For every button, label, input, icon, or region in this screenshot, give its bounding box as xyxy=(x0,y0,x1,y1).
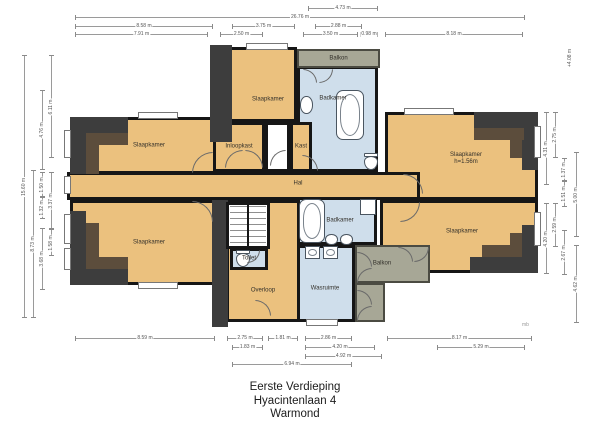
dimension-label: 5.00 m xyxy=(573,186,579,203)
dimension-label: 26.76 m xyxy=(290,14,310,20)
dimension-tick xyxy=(377,6,378,11)
shower-fixture-icon xyxy=(360,199,376,215)
dimension-tick xyxy=(207,32,208,37)
dimension-tick xyxy=(297,336,298,341)
floorplan-canvas: Slaapkamer h=1.56mSlaapkamerSlaapkamerSl… xyxy=(0,0,600,424)
dimension-tick xyxy=(351,336,352,341)
staircase xyxy=(226,202,270,249)
dimension-label: 6.11 m xyxy=(48,98,54,115)
dimension-tick xyxy=(524,15,525,20)
dimension-tick xyxy=(437,345,438,350)
dimension-tick xyxy=(574,245,579,246)
dimension-label: 3.37 m xyxy=(48,192,54,209)
dimension-label: 8.58 m xyxy=(135,23,152,29)
dimension-tick xyxy=(75,32,76,37)
dimension-tick xyxy=(562,181,567,182)
dimension-tick xyxy=(544,273,549,274)
room-label-badkamer-bottom: Badkamer xyxy=(326,218,353,225)
sink-fixture-icon xyxy=(340,234,353,245)
dimension-tick xyxy=(544,203,549,204)
dimension-tick xyxy=(40,169,45,170)
dimension-tick xyxy=(212,24,213,29)
room-label-bedroom-top-left: Slaapkamer xyxy=(133,142,165,149)
dimension-tick xyxy=(553,157,558,158)
dimension-tick xyxy=(75,24,76,29)
room-label-kast: Kast xyxy=(295,144,307,151)
dimension-tick xyxy=(268,336,269,341)
title-address: Hyacintenlaan 4 xyxy=(155,395,435,409)
room-label-overloop: Overloop xyxy=(251,288,275,295)
title-city: Warmond xyxy=(155,408,435,422)
dimension-tick xyxy=(531,336,532,341)
dimension-label: 6.94 m xyxy=(283,361,300,367)
dimension-tick xyxy=(553,246,558,247)
dimension-label: 2.67 m xyxy=(561,244,567,261)
dimension-label: 3.50 m xyxy=(322,31,339,37)
window xyxy=(246,43,288,50)
dimension-label: 2.50 m xyxy=(233,31,250,37)
dimension-label: 4.20 m xyxy=(543,230,549,247)
dimension-tick xyxy=(40,172,45,173)
dimension-tick xyxy=(305,345,306,350)
dimension-tick xyxy=(374,345,375,350)
dimension-tick xyxy=(544,112,549,113)
dimension-label: 15.60 m xyxy=(21,176,27,196)
dimension-tick xyxy=(351,362,352,367)
window xyxy=(534,126,541,158)
roof-slope-zone xyxy=(86,257,128,269)
dimension-tick xyxy=(305,336,306,341)
washer-fixture-icon xyxy=(323,246,338,259)
dimension-tick xyxy=(305,354,306,359)
dimension-tick xyxy=(522,32,523,37)
dimension-tick xyxy=(553,112,558,113)
dimension-label: 2.88 m xyxy=(330,23,347,29)
dimension-label: 2.86 m xyxy=(320,335,337,341)
dimension-tick xyxy=(40,289,45,290)
dimension-label: 4.76 m xyxy=(39,121,45,138)
room-label-badkamer-top: Badkamer xyxy=(319,96,346,103)
dimension-label: 8.18 m xyxy=(445,31,462,37)
room-label-bedroom-bottom-right: Slaapkamer xyxy=(446,229,478,236)
room-label-bedroom-top-right: Slaapkamer h=1.56m xyxy=(450,152,482,166)
window xyxy=(306,319,338,326)
room-label-inloopkast: Inloopkast xyxy=(225,144,252,151)
dimension-tick xyxy=(49,255,54,256)
dimension-tick xyxy=(49,55,54,56)
dimension-tick xyxy=(232,24,233,29)
roof-slope-zone xyxy=(510,128,522,158)
floorplan-page: { "title": { "line1": "Eerste Verdieping… xyxy=(0,0,600,424)
dimension-tick xyxy=(262,32,263,37)
tank-fixture-icon xyxy=(364,153,378,157)
dimension-tick xyxy=(562,230,567,231)
room-label-toilet: Toilet xyxy=(242,256,256,263)
dimension-tick xyxy=(220,32,221,37)
dimension-tick xyxy=(262,336,263,341)
dimension-tick xyxy=(574,152,579,153)
window xyxy=(534,212,541,246)
dimension-tick xyxy=(315,24,316,29)
room-hal xyxy=(67,172,420,200)
window xyxy=(64,130,71,158)
dimension-tick xyxy=(357,32,358,37)
dimension-tick xyxy=(524,345,525,350)
dimension-label: 3.68 m xyxy=(39,250,45,267)
roof-slope-zone xyxy=(70,117,128,133)
title-block: Eerste Verdieping Hyacintenlaan 4 Warmon… xyxy=(155,381,435,422)
dimension-label: 8.59 m xyxy=(136,335,153,341)
dimension-tick xyxy=(562,206,567,207)
dimension-tick xyxy=(387,336,388,341)
room-label-wasruimte: Wasruimte xyxy=(311,286,339,293)
dimension-label: 1.58 m xyxy=(48,234,54,251)
room-label-hal: Hal xyxy=(293,181,302,188)
dimension-label: 1.37 m xyxy=(561,161,567,178)
dimension-tick xyxy=(75,336,76,341)
roof-slope-zone xyxy=(210,45,232,142)
washer-drum xyxy=(326,249,335,256)
sink-fixture-icon xyxy=(300,96,313,114)
dimension-tick xyxy=(232,345,233,350)
dimension-tick xyxy=(40,218,45,219)
room-label-balkon-bottom: Balkon xyxy=(373,261,391,268)
dimension-tick xyxy=(49,172,54,173)
tub-fixture-icon xyxy=(299,199,325,243)
dimension-tick xyxy=(308,6,309,11)
room-label-bedroom-bottom-left: Slaapkamer xyxy=(133,239,165,246)
dimension-label: 5.29 m xyxy=(472,344,489,350)
dimension-tick xyxy=(562,274,567,275)
dimension-tick xyxy=(40,197,45,198)
window xyxy=(138,282,178,289)
dimension-tick xyxy=(574,236,579,237)
dimension-tick xyxy=(40,228,45,229)
dimension-label: 1.81 m xyxy=(274,335,291,341)
sink-fixture-icon xyxy=(325,234,338,245)
dimension-label: 3.75 m xyxy=(255,23,272,29)
tub-basin xyxy=(303,203,321,239)
level-marker-label: +4.08 m xyxy=(567,48,573,68)
dimension-tick xyxy=(294,24,295,29)
dimension-tick xyxy=(262,345,263,350)
room-label-balkon-top: Balkon xyxy=(329,55,347,62)
title-floor: Eerste Verdieping xyxy=(155,381,435,395)
dimension-label: 4.92 m xyxy=(335,353,352,359)
dimension-tick xyxy=(544,184,549,185)
dimension-label: 1.83 m xyxy=(239,344,256,350)
washer-fixture-icon xyxy=(305,246,320,259)
dimension-tick xyxy=(49,229,54,230)
dimension-label: 8.73 m xyxy=(30,235,36,252)
dimension-tick xyxy=(214,336,215,341)
dimension-tick xyxy=(574,322,579,323)
dimension-tick xyxy=(22,317,27,318)
dimension-tick xyxy=(49,157,54,158)
dimension-label: 2.59 m xyxy=(552,216,558,233)
roof-slope-zone xyxy=(510,233,522,257)
dimension-tick xyxy=(232,362,233,367)
window xyxy=(64,248,71,270)
dimension-label: 2.75 m xyxy=(236,335,253,341)
dimension-tick xyxy=(31,317,36,318)
window xyxy=(404,108,454,115)
dimension-label: 4.62 m xyxy=(573,275,579,292)
dimension-label: 4.73 m xyxy=(334,5,351,11)
dimension-tick xyxy=(227,336,228,341)
dimension-tick xyxy=(22,55,27,56)
dimension-tick xyxy=(31,170,36,171)
window xyxy=(138,112,178,119)
dimension-tick xyxy=(553,203,558,204)
dimension-tick xyxy=(303,32,304,37)
dimension-tick xyxy=(385,32,386,37)
watermark-logo: mb xyxy=(522,322,529,328)
dimension-tick xyxy=(75,15,76,20)
roof-slope-zone xyxy=(86,133,128,145)
dimension-label: 7.91 m xyxy=(133,31,150,37)
stair-divider xyxy=(247,205,249,246)
dimension-label: 0.98 m xyxy=(360,31,377,37)
room-label-bedroom-top-center: Slaapkamer xyxy=(252,97,284,104)
dimension-tick xyxy=(361,24,362,29)
window xyxy=(64,176,71,194)
dimension-tick xyxy=(381,354,382,359)
dimension-tick xyxy=(40,90,45,91)
roof-slope-zone xyxy=(70,269,128,285)
dimension-label: 1.32 m xyxy=(39,199,45,216)
dimension-label: 8.17 m xyxy=(451,335,468,341)
dimension-tick xyxy=(562,158,567,159)
dimension-label: 1.51 m xyxy=(561,185,567,202)
dimension-label: 1.50 m xyxy=(39,176,45,193)
dimension-label: 4.31 m xyxy=(543,140,549,157)
washer-drum xyxy=(308,249,317,256)
dimension-label: 4.20 m xyxy=(331,344,348,350)
dimension-label: 2.75 m xyxy=(552,126,558,143)
window xyxy=(64,214,71,244)
